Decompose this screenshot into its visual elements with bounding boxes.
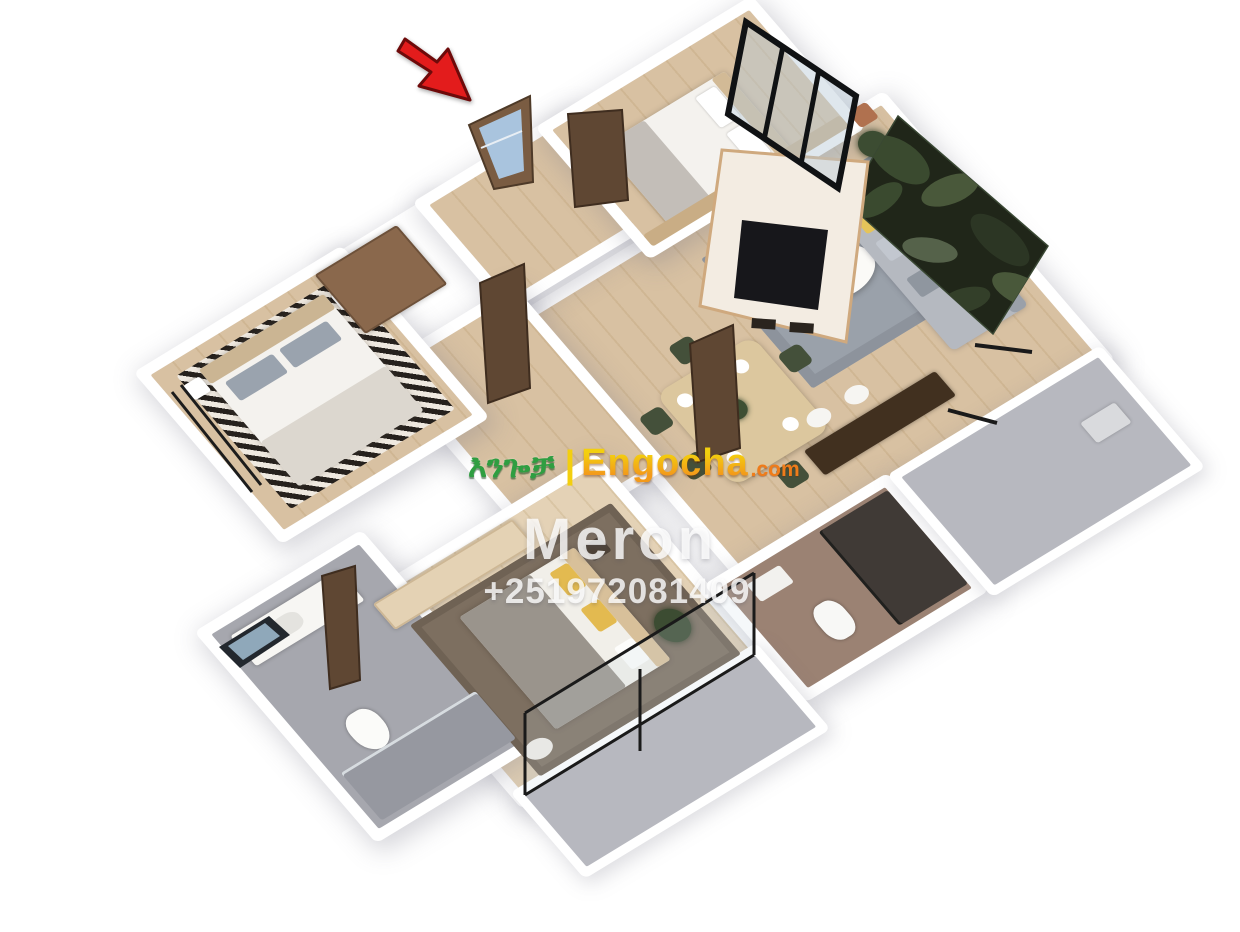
watermark-seller-name: Meron — [523, 506, 717, 573]
engocha-logo-brand: Engocha — [581, 444, 748, 482]
engocha-logo-separator: | — [565, 448, 576, 482]
engocha-logo: እንጐቻ | Engocha .com — [468, 444, 800, 482]
floorplan-3d-render: እንጐቻ | Engocha .com Meron +251972081409 — [0, 0, 1240, 932]
watermark-phone: +251972081409 — [483, 572, 750, 612]
engocha-logo-tld: .com — [751, 459, 800, 480]
entrance-arrow-icon — [398, 39, 470, 100]
engocha-logo-amharic: እንጐቻ — [468, 450, 555, 482]
